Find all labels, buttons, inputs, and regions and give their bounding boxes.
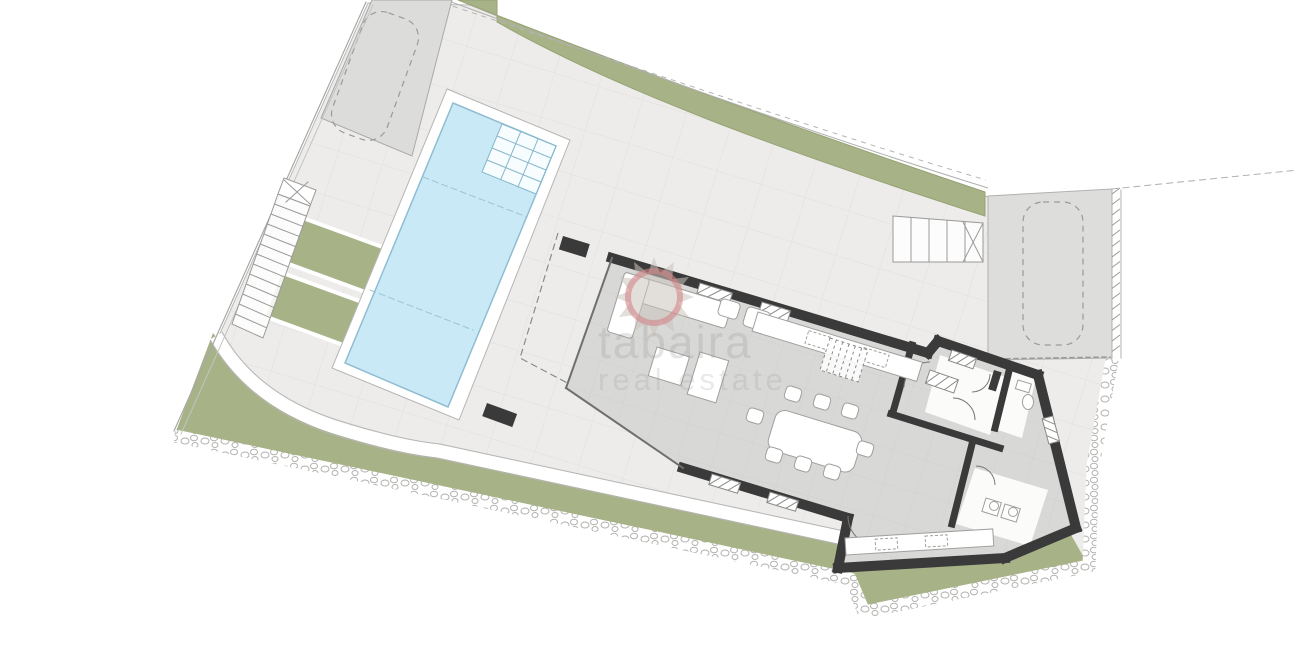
exterior-stairs-top [893, 216, 983, 262]
watermark-line-1: tabaira [598, 316, 753, 368]
carport-edge-ticks [1112, 188, 1120, 352]
watermark-line-2: real estate [598, 362, 787, 397]
boundary-ne-dashed [1112, 170, 1298, 189]
bath-toilet [1023, 395, 1034, 410]
carport [988, 189, 1112, 360]
floor-plan-page: tabairareal estate [0, 0, 1300, 650]
floor-plan: tabairareal estate [0, 0, 1300, 650]
